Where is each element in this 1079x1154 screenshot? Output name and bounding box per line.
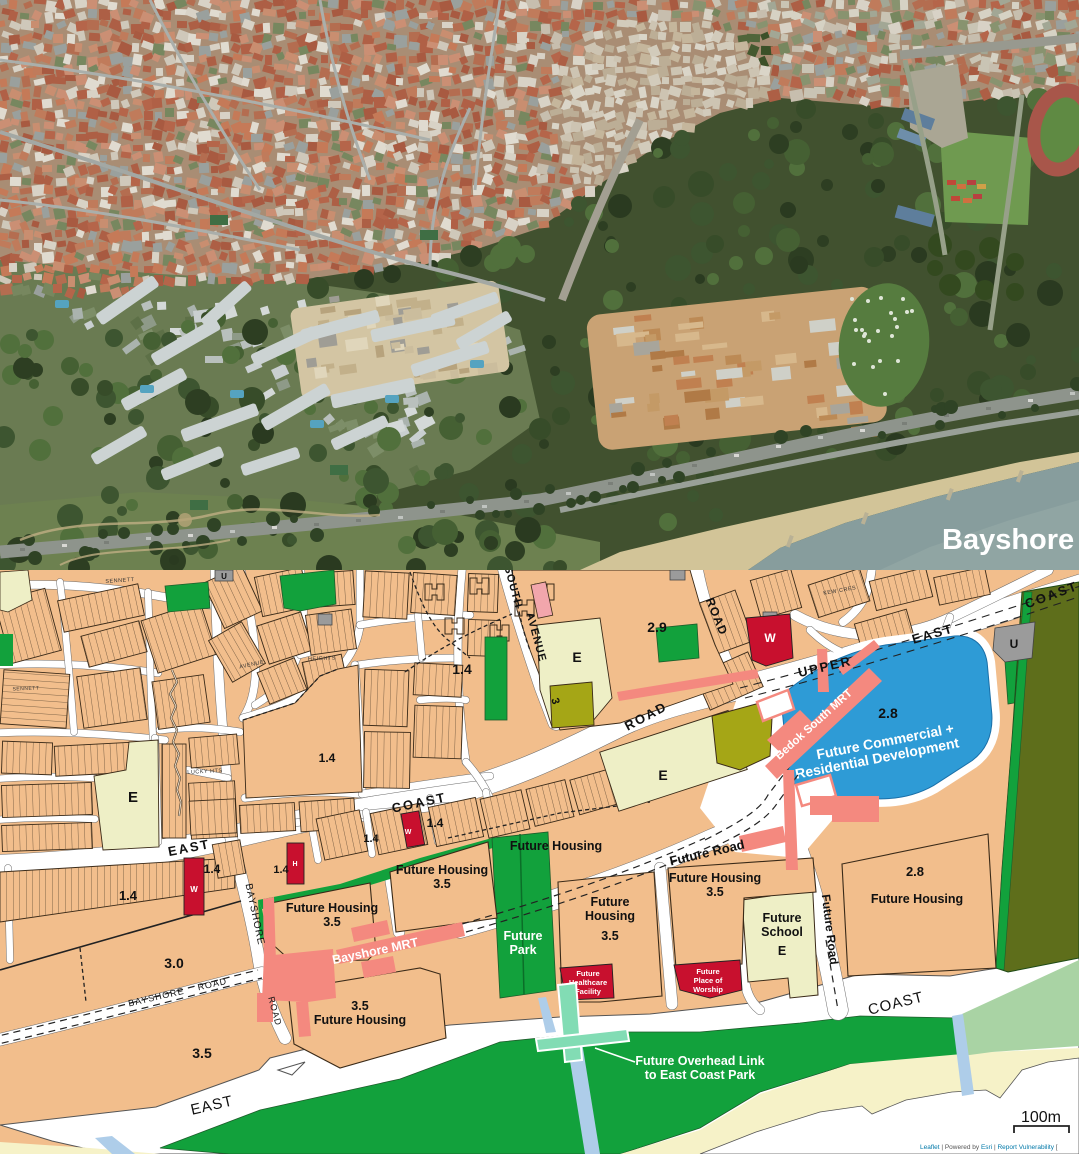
- svg-text:HEIGHTS: HEIGHTS: [308, 656, 336, 663]
- svg-text:2.9: 2.9: [647, 619, 667, 635]
- svg-text:E: E: [778, 944, 786, 958]
- svg-text:3.0: 3.0: [164, 955, 184, 971]
- svg-text:3.5: 3.5: [351, 999, 368, 1013]
- svg-text:Worship: Worship: [693, 985, 723, 994]
- svg-text:W: W: [190, 885, 198, 894]
- svg-text:1.4: 1.4: [452, 661, 472, 677]
- svg-text:E: E: [658, 767, 667, 783]
- svg-text:Future Housing: Future Housing: [871, 892, 963, 906]
- svg-text:3.5: 3.5: [706, 885, 723, 899]
- svg-text:Future: Future: [576, 969, 599, 978]
- svg-text:1.4: 1.4: [204, 862, 221, 876]
- svg-text:SENNETT: SENNETT: [12, 686, 39, 693]
- svg-text:W: W: [405, 829, 412, 836]
- svg-text:3.5: 3.5: [601, 929, 618, 943]
- svg-text:Leaflet | Powered by Esri | Re: Leaflet | Powered by Esri | Report Vulne…: [920, 1144, 1058, 1151]
- svg-text:Future Housing: Future Housing: [510, 839, 602, 853]
- svg-text:1.4: 1.4: [363, 833, 379, 845]
- svg-text:E: E: [572, 649, 581, 665]
- svg-text:Future Housing: Future Housing: [396, 863, 488, 877]
- svg-text:100m: 100m: [1021, 1109, 1061, 1126]
- svg-text:Future: Future: [591, 895, 630, 909]
- svg-text:1.4: 1.4: [319, 751, 336, 765]
- svg-text:3.5: 3.5: [192, 1045, 212, 1061]
- svg-text:U: U: [221, 572, 227, 581]
- svg-text:Future Overhead Link: Future Overhead Link: [635, 1054, 764, 1068]
- svg-text:Place of: Place of: [694, 976, 723, 985]
- svg-text:2.8: 2.8: [878, 705, 898, 721]
- svg-text:Bayshore: Bayshore: [942, 524, 1074, 556]
- svg-text:Future Housing: Future Housing: [286, 901, 378, 915]
- svg-text:W: W: [764, 631, 776, 645]
- svg-text:Future: Future: [504, 929, 543, 943]
- svg-text:3.5: 3.5: [433, 877, 450, 891]
- svg-text:Facility: Facility: [575, 987, 602, 996]
- svg-text:School: School: [761, 925, 803, 939]
- svg-text:1.4: 1.4: [119, 888, 138, 903]
- svg-text:H: H: [292, 861, 297, 868]
- svg-text:Park: Park: [509, 943, 536, 957]
- svg-text:1.4: 1.4: [427, 816, 444, 830]
- svg-text:3.5: 3.5: [323, 915, 340, 929]
- svg-text:E: E: [128, 789, 138, 806]
- svg-text:Housing: Housing: [585, 909, 635, 923]
- svg-text:Future Housing: Future Housing: [314, 1013, 406, 1027]
- svg-text:1.4: 1.4: [273, 864, 289, 876]
- svg-text:Future: Future: [763, 911, 802, 925]
- svg-text:U: U: [1010, 637, 1019, 651]
- svg-text:2.8: 2.8: [906, 864, 924, 879]
- svg-text:Future Housing: Future Housing: [669, 871, 761, 885]
- svg-text:Future: Future: [696, 967, 719, 976]
- svg-text:to East Coast Park: to East Coast Park: [645, 1068, 756, 1082]
